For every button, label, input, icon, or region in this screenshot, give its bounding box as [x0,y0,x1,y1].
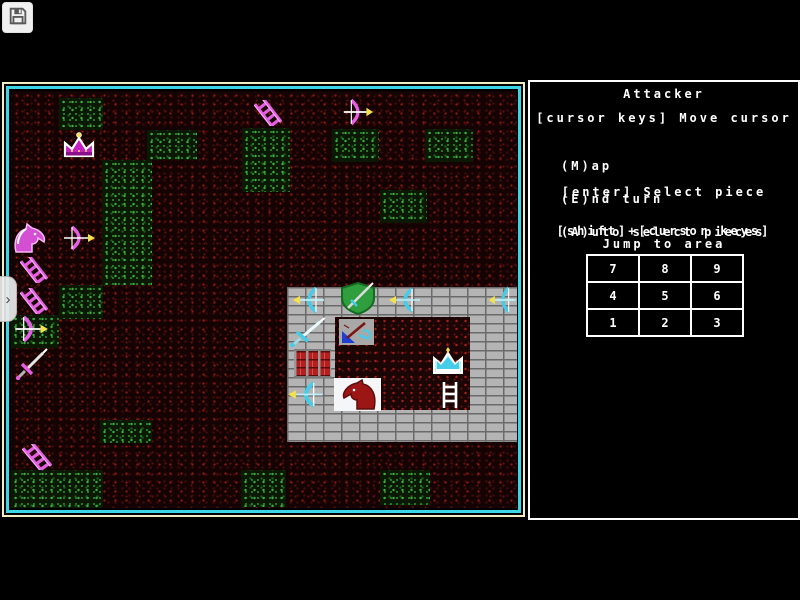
numpad-cell-1[interactable]: 1 [588,310,638,335]
hint-move-cursor: [cursor keys] Move cursor [530,111,798,125]
hint-jump-label: Jump to area [530,237,798,251]
defender-ladder[interactable] [439,381,461,409]
terrain-grass [241,470,286,507]
save-button[interactable] [2,2,33,33]
terrain-grass [11,470,103,508]
defender-horse-tile[interactable] [334,378,381,411]
terrain-grass [380,470,430,505]
defender-bow-1[interactable] [292,286,328,314]
selected-piece-tile[interactable] [339,319,374,345]
terrain-grass [242,128,290,192]
terrain-grass [59,98,103,130]
terrain-grass [332,129,379,162]
attacker-sword[interactable] [14,348,50,380]
terrain-grass [59,285,103,319]
jump-area-numpad: 789456123 [586,254,744,337]
turn-title: Attacker [530,87,798,101]
attacker-bow-4[interactable] [11,315,49,343]
numpad-cell-7[interactable]: 7 [588,256,638,281]
attacker-ladder-2[interactable] [20,257,48,283]
attacker-horse[interactable] [11,222,51,254]
defender-bow-2[interactable] [388,287,424,313]
battle-map[interactable] [11,91,517,508]
defender-crown[interactable] [430,346,466,378]
info-panel: Attacker [cursor keys] Move cursor (M)ap… [528,80,800,520]
terrain-grass [147,130,197,160]
attacker-ladder-1[interactable] [254,100,282,126]
terrain-grass [102,160,152,285]
numpad-cell-2[interactable]: 2 [640,310,690,335]
attacker-bow-1[interactable] [340,98,374,126]
menu-item-map[interactable]: (M)ap [561,161,766,172]
terrain-grass [380,190,427,223]
numpad-cell-4[interactable]: 4 [588,283,638,308]
save-icon [7,5,29,31]
defender-bow-3[interactable] [488,286,517,314]
battle-map-frame [2,82,525,517]
defender-bow-4[interactable] [287,381,327,408]
defender-shield[interactable] [339,282,377,315]
side-panel-toggle[interactable]: › [0,276,17,322]
chevron-right-icon: › [6,291,11,308]
attacker-crown[interactable] [60,132,98,160]
battle-map-border [6,86,521,513]
terrain-grass [425,129,473,162]
numpad-cell-6[interactable]: 6 [692,283,742,308]
hint-select-piece: [enter] Select piece [530,185,798,199]
numpad-cell-9[interactable]: 9 [692,256,742,281]
defender-sword[interactable] [288,317,328,347]
hint-jump-keys: [shift]+[cursor keys] [530,224,798,238]
numpad-cell-8[interactable]: 8 [640,256,690,281]
numpad-cell-5[interactable]: 5 [640,283,690,308]
numpad-cell-3[interactable]: 3 [692,310,742,335]
castle-gate[interactable] [294,349,331,378]
attacker-ladder-5[interactable] [22,444,52,470]
terrain-grass [100,420,152,443]
attacker-bow-2[interactable] [60,225,96,251]
attacker-ladder-3[interactable] [20,288,48,314]
